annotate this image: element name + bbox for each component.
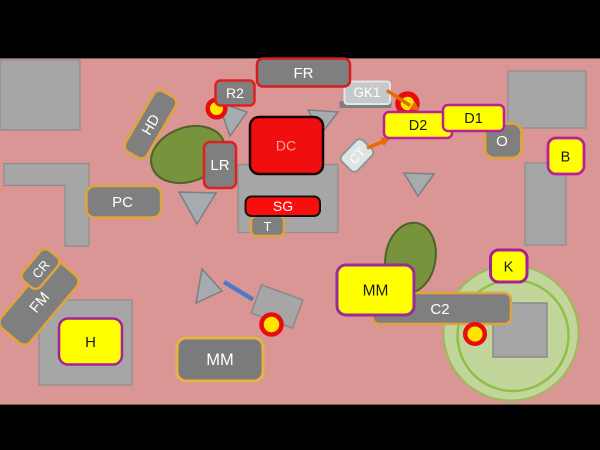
svg-text:R2: R2	[226, 85, 244, 101]
svg-text:FR: FR	[294, 65, 314, 82]
svg-text:T: T	[264, 219, 272, 234]
svg-text:D2: D2	[409, 118, 428, 134]
svg-text:SG: SG	[273, 198, 293, 214]
svg-text:B: B	[561, 150, 571, 166]
svg-text:PC: PC	[112, 194, 133, 211]
svg-text:O: O	[496, 133, 508, 150]
svg-text:MM: MM	[206, 351, 234, 369]
svg-text:K: K	[504, 260, 514, 276]
svg-text:C2: C2	[430, 301, 449, 318]
svg-text:D1: D1	[464, 111, 483, 127]
svg-text:DC: DC	[276, 138, 296, 154]
svg-text:MM: MM	[363, 283, 389, 300]
svg-text:GK1: GK1	[353, 85, 380, 100]
svg-text:H: H	[85, 334, 96, 351]
svg-text:LR: LR	[210, 157, 229, 174]
